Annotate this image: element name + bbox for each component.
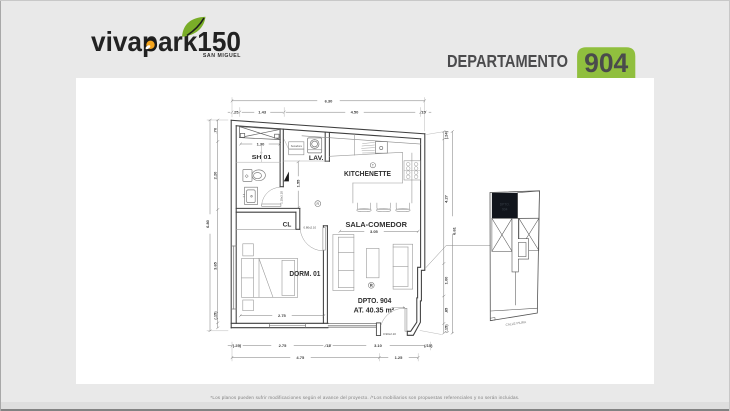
svg-text:SH 01: SH 01 bbox=[252, 155, 272, 161]
svg-text:904: 904 bbox=[584, 48, 628, 78]
svg-text:CL: CL bbox=[283, 221, 292, 228]
svg-text:Secadora: Secadora bbox=[291, 144, 303, 148]
svg-text:3.10: 3.10 bbox=[374, 343, 383, 348]
svg-text:LAV.: LAV. bbox=[309, 156, 324, 162]
svg-text:4.50: 4.50 bbox=[351, 110, 360, 115]
svg-text:.25: .25 bbox=[233, 110, 239, 115]
svg-text:0.80x2.10: 0.80x2.10 bbox=[303, 226, 316, 230]
svg-text:1.55: 1.55 bbox=[296, 179, 301, 188]
svg-text:2.20: 2.20 bbox=[212, 171, 217, 180]
svg-text:R: R bbox=[316, 202, 319, 206]
svg-text:904: 904 bbox=[502, 208, 508, 212]
svg-text:6.30: 6.30 bbox=[325, 98, 334, 103]
svg-text:DPTO.: DPTO. bbox=[500, 203, 510, 207]
svg-text:1.00: 1.00 bbox=[443, 276, 448, 285]
svg-text:0.90x2.10: 0.90x2.10 bbox=[383, 332, 396, 336]
svg-text:KITCHENETTE: KITCHENETTE bbox=[344, 171, 391, 178]
svg-text:4.75: 4.75 bbox=[296, 355, 305, 360]
svg-text:.70: .70 bbox=[212, 127, 217, 133]
svg-text:.15: .15 bbox=[420, 110, 426, 115]
svg-text:3.65: 3.65 bbox=[212, 261, 217, 270]
svg-text:6.61: 6.61 bbox=[452, 226, 457, 235]
svg-text:3.05: 3.05 bbox=[370, 229, 379, 234]
svg-text:(.15): (.15) bbox=[424, 343, 433, 348]
svg-text:R: R bbox=[370, 284, 373, 288]
svg-text:SAN MIGUEL: SAN MIGUEL bbox=[203, 53, 241, 59]
svg-text:vivapark150: vivapark150 bbox=[91, 26, 241, 57]
svg-text:.85: .85 bbox=[443, 307, 448, 313]
svg-text:1.10x2.10: 1.10x2.10 bbox=[280, 191, 284, 204]
svg-text:(.15): (.15) bbox=[212, 311, 217, 320]
svg-text:6.80: 6.80 bbox=[205, 219, 210, 228]
svg-text:2.75: 2.75 bbox=[278, 313, 287, 318]
svg-text:1.30: 1.30 bbox=[257, 142, 266, 147]
svg-text:1.25: 1.25 bbox=[395, 355, 404, 360]
svg-text:(.25): (.25) bbox=[233, 343, 242, 348]
svg-text:2.75: 2.75 bbox=[279, 343, 288, 348]
svg-text:DEPARTAMENTO: DEPARTAMENTO bbox=[447, 51, 568, 71]
svg-text:CALLE PIURA: CALLE PIURA bbox=[505, 320, 527, 327]
svg-text:1.43: 1.43 bbox=[258, 110, 267, 115]
svg-text:DORM. 01: DORM. 01 bbox=[289, 271, 320, 278]
svg-text:T: T bbox=[372, 164, 374, 168]
svg-text:(.15): (.15) bbox=[443, 324, 448, 333]
svg-text:DPTO. 904: DPTO. 904 bbox=[358, 298, 392, 305]
svg-text:4.27: 4.27 bbox=[443, 194, 448, 203]
svg-text:.15: .15 bbox=[325, 343, 331, 348]
